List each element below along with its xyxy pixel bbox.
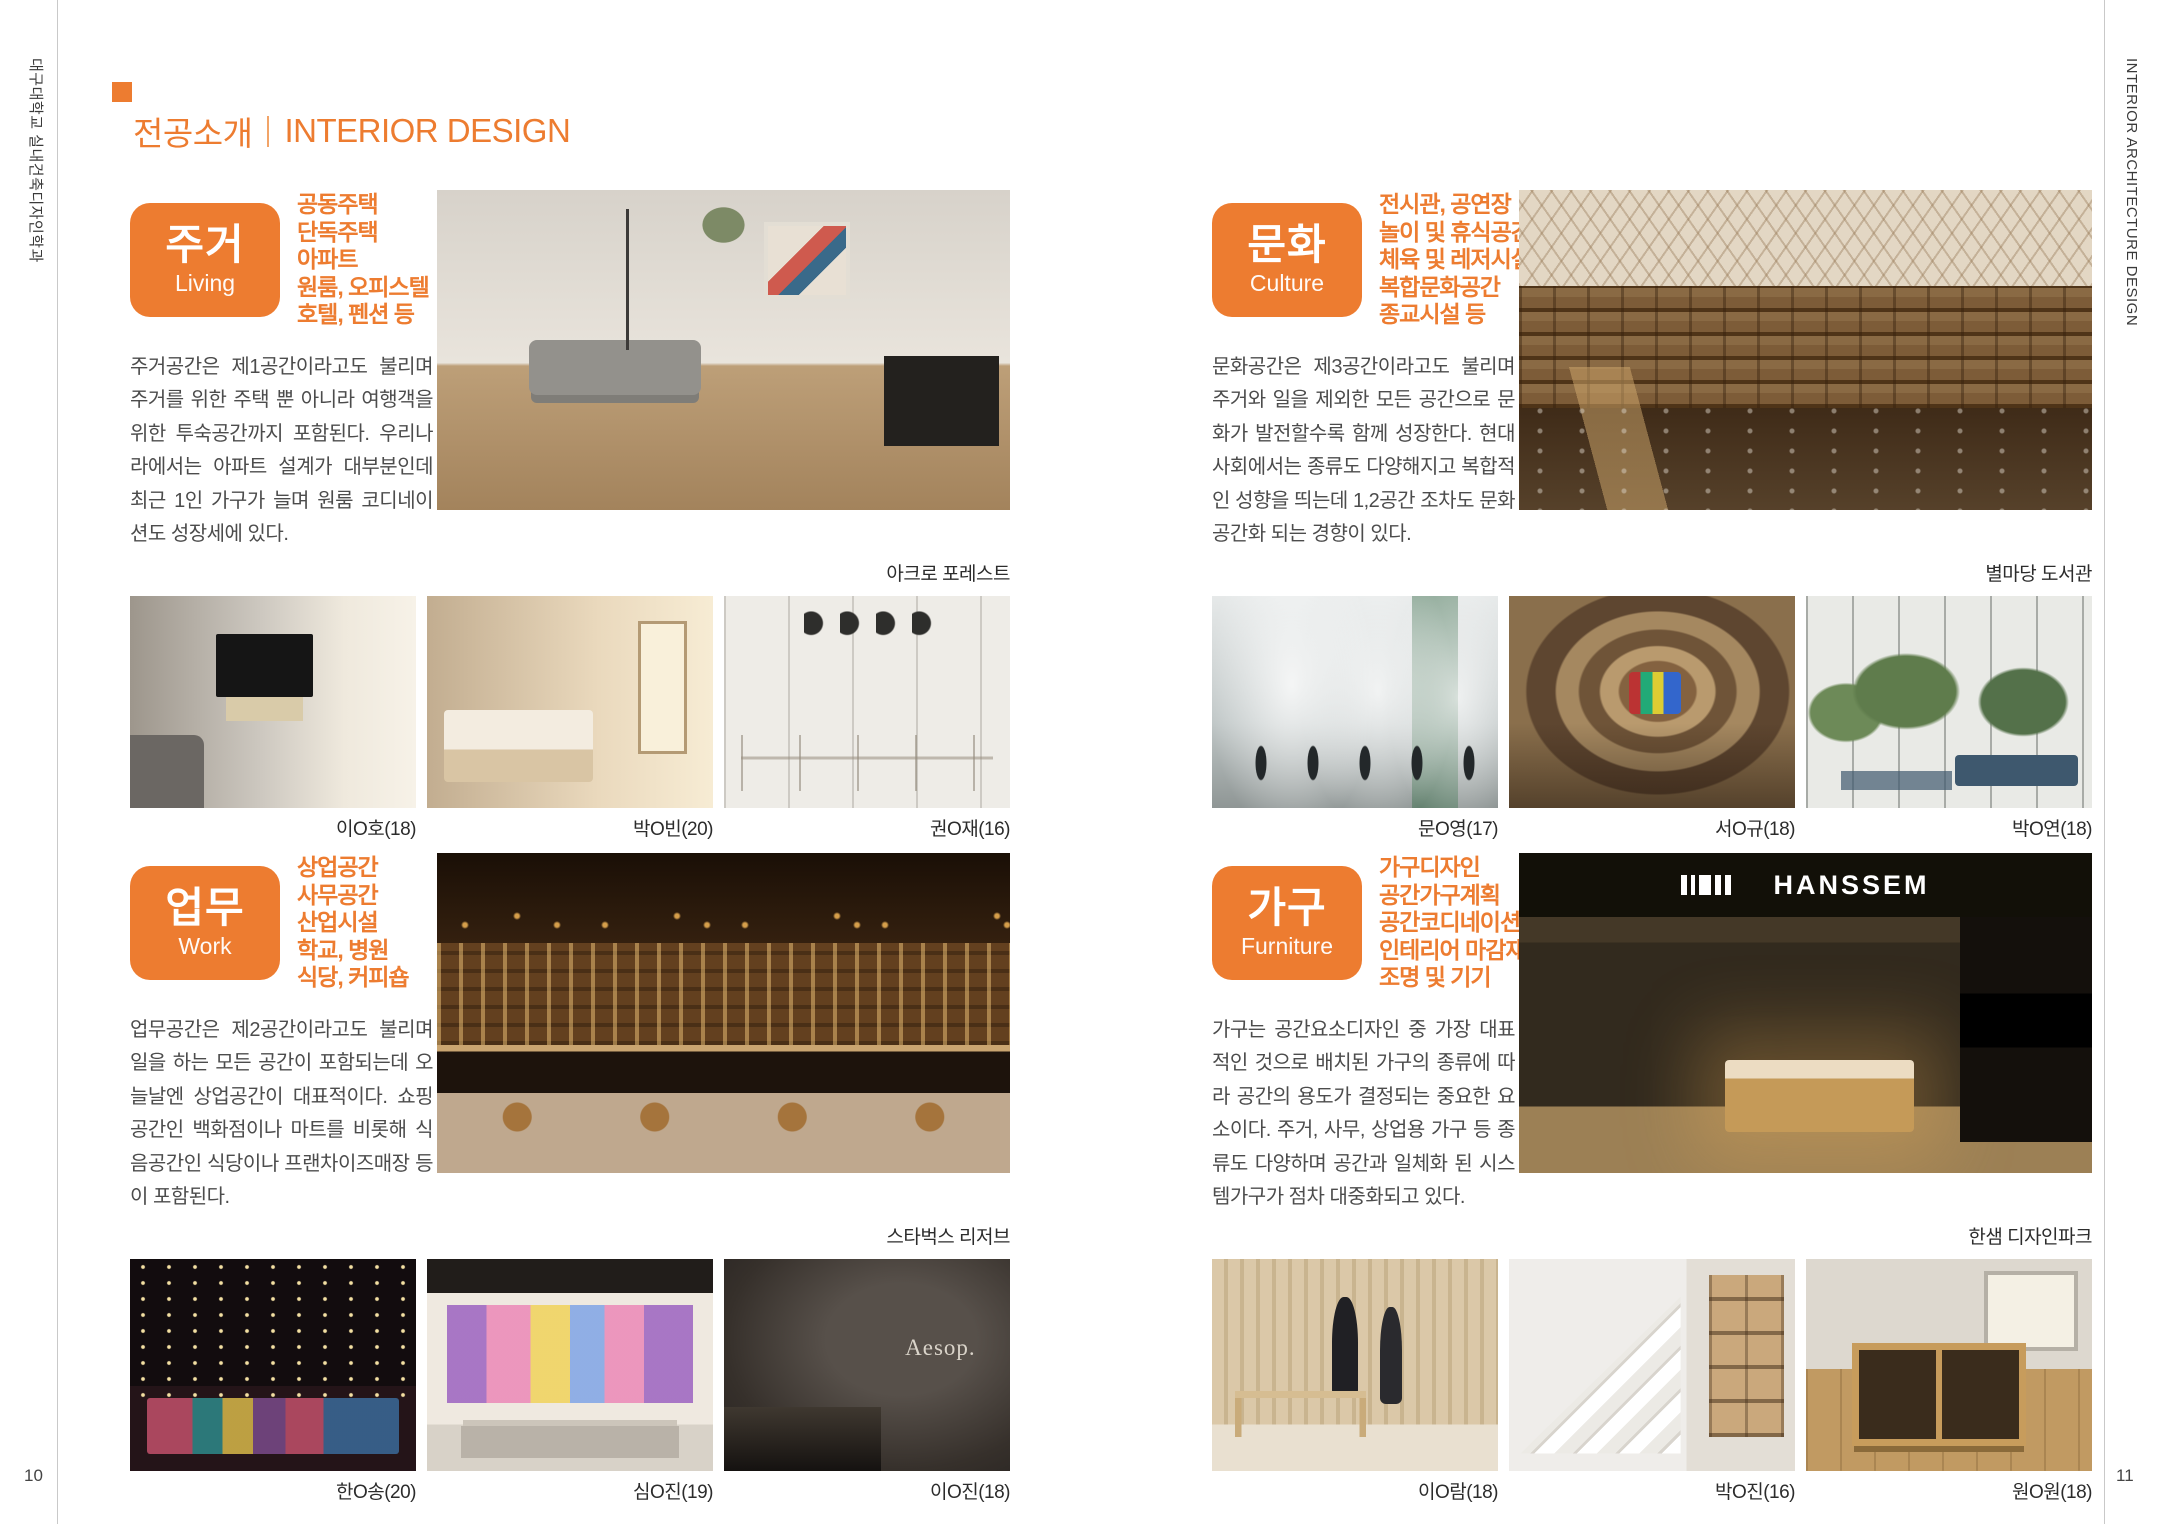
furniture-thumb-2: 박O진(16) <box>1509 1259 1795 1504</box>
brochure-spread: 대구대학교 실내건축디자인학과 INTERIOR ARCHITECTURE DE… <box>0 0 2162 1524</box>
culture-badge-subtitle: Culture <box>1250 270 1324 297</box>
living-keyword-2: 단독주택 <box>297 219 429 247</box>
culture-keyword-4: 복합문화공간 <box>1379 274 1531 302</box>
culture-thumb-photo-3 <box>1806 596 2092 808</box>
work-thumb-caption-1: 한O송(20) <box>130 1477 416 1504</box>
furniture-badge: 가구 Furniture <box>1212 866 1362 980</box>
culture-thumb-caption-2: 서O규(18) <box>1509 814 1795 841</box>
living-thumb-caption-2: 박O빈(20) <box>427 814 713 841</box>
furniture-badge-row: 가구 Furniture 가구디자인 공간가구계획 공간코디네이션 인테리어 마… <box>1212 853 1519 992</box>
living-badge-title: 주거 <box>165 223 244 267</box>
furniture-text-column: 가구 Furniture 가구디자인 공간가구계획 공간코디네이션 인테리어 마… <box>1212 853 1519 1215</box>
work-badge-subtitle: Work <box>178 933 231 960</box>
work-keywords: 상업공간 사무공간 산업시설 학교, 병원 식당, 커피숍 <box>297 853 409 992</box>
culture-thumb-photo-2 <box>1509 596 1795 808</box>
work-keyword-3: 산업시설 <box>297 909 409 937</box>
culture-text-column: 문화 Culture 전시관, 공연장 놀이 및 휴식공간 체육 및 레저시설 … <box>1212 190 1519 552</box>
work-thumb-photo-3: Aesop. <box>724 1259 1010 1471</box>
cafe-ceiling-shape <box>437 853 1010 943</box>
furniture-thumb-caption-1: 이O람(18) <box>1212 1477 1498 1504</box>
work-thumb-3: Aesop. 이O진(18) <box>724 1259 1010 1504</box>
living-thumb-1: 이O호(18) <box>130 596 416 841</box>
culture-keyword-2: 놀이 및 휴식공간 <box>1379 219 1531 247</box>
plant-shape <box>689 196 758 254</box>
culture-main-caption: 별마당 도서관 <box>1212 559 2092 585</box>
furniture-main-photo: HANSSEM <box>1519 853 2092 1173</box>
living-keyword-1: 공동주택 <box>297 191 429 219</box>
culture-keywords: 전시관, 공연장 놀이 및 휴식공간 체육 및 레저시설 복합문화공간 종교시설… <box>1379 190 1531 329</box>
title-divider <box>267 116 269 147</box>
living-main-caption: 아크로 포레스트 <box>130 559 1010 585</box>
page-number-left: 10 <box>24 1466 43 1486</box>
culture-badge-row: 문화 Culture 전시관, 공연장 놀이 및 휴식공간 체육 및 레저시설 … <box>1212 190 1519 329</box>
furniture-thumb-caption-2: 박O진(16) <box>1509 1477 1795 1504</box>
living-thumb-photo-2 <box>427 596 713 808</box>
living-text-column: 주거 Living 공동주택 단독주택 아파트 원룸, 오피스텔 호텔, 펜션 … <box>130 190 437 552</box>
living-thumb-caption-3: 권O재(16) <box>724 814 1010 841</box>
work-keyword-1: 상업공간 <box>297 854 409 882</box>
page-title-en: INTERIOR DESIGN <box>284 112 570 150</box>
showroom-bedroom-shape <box>1519 917 2092 1173</box>
left-spine-text: 대구대학교 실내건축디자인학과 <box>26 58 47 263</box>
floor-lamp-shape <box>626 209 629 350</box>
furniture-thumb-caption-3: 원O원(18) <box>1806 1477 2092 1504</box>
living-thumb-row: 이O호(18) 박O빈(20) 권O재(16) <box>130 596 1010 841</box>
work-keyword-2: 사무공간 <box>297 882 409 910</box>
section-culture: 문화 Culture 전시관, 공연장 놀이 및 휴식공간 체육 및 레저시설 … <box>1212 190 2092 841</box>
furniture-description: 가구는 공간요소디자인 중 가장 대표적인 것으로 배치된 가구의 종류에 따라… <box>1212 1014 1515 1215</box>
left-margin-rule <box>57 0 58 1524</box>
living-badge-subtitle: Living <box>175 270 235 297</box>
cafe-shelf-wall-shape <box>437 943 1010 1045</box>
work-badge-row: 업무 Work 상업공간 사무공간 산업시설 학교, 병원 식당, 커피숍 <box>130 853 437 992</box>
work-thumb-2: 심O진(19) <box>427 1259 713 1504</box>
work-badge-title: 업무 <box>165 886 244 930</box>
furniture-badge-subtitle: Furniture <box>1241 933 1333 960</box>
furniture-thumb-photo-1 <box>1212 1259 1498 1471</box>
work-thumb-photo-1 <box>130 1259 416 1471</box>
section-work: 업무 Work 상업공간 사무공간 산업시설 학교, 병원 식당, 커피숍 업무… <box>130 853 1010 1504</box>
furniture-thumb-photo-2 <box>1509 1259 1795 1471</box>
culture-description: 문화공간은 제3공간이라고도 불리며 주거와 일을 제외한 모든 공간으로 문화… <box>1212 351 1515 552</box>
right-margin-rule <box>2104 0 2105 1524</box>
work-thumb-caption-2: 심O진(19) <box>427 1477 713 1504</box>
living-thumb-caption-1: 이O호(18) <box>130 814 416 841</box>
furniture-thumb-photo-3 <box>1806 1259 2092 1471</box>
work-thumb-row: 한O송(20) 심O진(19) Aesop. 이O진(18) <box>130 1259 1010 1504</box>
left-page-column: 주거 Living 공동주택 단독주택 아파트 원룸, 오피스텔 호텔, 펜션 … <box>130 190 1010 1450</box>
work-text-column: 업무 Work 상업공간 사무공간 산업시설 학교, 병원 식당, 커피숍 업무… <box>130 853 437 1215</box>
furniture-keywords: 가구디자인 공간가구계획 공간코디네이션 인테리어 마감재 조명 및 기기 <box>1379 853 1526 992</box>
library-floor-shape <box>1519 408 2092 510</box>
culture-badge-title: 문화 <box>1247 223 1326 267</box>
furniture-main-caption: 한샘 디자인파크 <box>1212 1222 2092 1248</box>
aesop-logo-text: Aesop. <box>905 1335 976 1361</box>
living-keyword-3: 아파트 <box>297 246 429 274</box>
work-description: 업무공간은 제2공간이라고도 불리며 일을 하는 모든 공간이 포함되는데 오늘… <box>130 1014 433 1215</box>
work-thumb-1: 한O송(20) <box>130 1259 416 1504</box>
cafe-counter-shape <box>437 1045 1010 1093</box>
library-ceiling-shape <box>1519 190 2092 286</box>
culture-keyword-5: 종교시설 등 <box>1379 301 1531 329</box>
culture-top-row: 문화 Culture 전시관, 공연장 놀이 및 휴식공간 체육 및 레저시설 … <box>1212 190 2092 552</box>
work-main-caption: 스타벅스 리저브 <box>130 1222 1010 1248</box>
hanssem-sign: HANSSEM <box>1519 853 2092 917</box>
page-title: 전공소개 INTERIOR DESIGN <box>133 107 570 155</box>
hanssem-sign-text: HANSSEM <box>1773 870 1929 901</box>
work-keyword-4: 학교, 병원 <box>297 937 409 965</box>
culture-main-photo <box>1519 190 2092 510</box>
furniture-thumb-1: 이O람(18) <box>1212 1259 1498 1504</box>
right-spine-text: INTERIOR ARCHITECTURE DESIGN <box>2123 58 2140 326</box>
work-badge: 업무 Work <box>130 866 280 980</box>
culture-thumb-caption-3: 박O연(18) <box>1806 814 2092 841</box>
living-thumb-photo-3 <box>724 596 1010 808</box>
living-top-row: 주거 Living 공동주택 단독주택 아파트 원룸, 오피스텔 호텔, 펜션 … <box>130 190 1010 552</box>
living-keyword-5: 호텔, 펜션 등 <box>297 301 429 329</box>
living-keyword-4: 원룸, 오피스텔 <box>297 274 429 302</box>
living-keywords: 공동주택 단독주택 아파트 원룸, 오피스텔 호텔, 펜션 등 <box>297 190 429 329</box>
furniture-keyword-5: 조명 및 기기 <box>1379 964 1526 992</box>
culture-thumb-1: 문O영(17) <box>1212 596 1498 841</box>
hanssem-logo-icon <box>1681 875 1755 895</box>
wall-art-shape <box>764 222 850 299</box>
culture-thumb-photo-1 <box>1212 596 1498 808</box>
culture-thumb-3: 박O연(18) <box>1806 596 2092 841</box>
right-page-column: 문화 Culture 전시관, 공연장 놀이 및 휴식공간 체육 및 레저시설 … <box>1212 190 2092 1450</box>
living-badge-row: 주거 Living 공동주택 단독주택 아파트 원룸, 오피스텔 호텔, 펜션 … <box>130 190 437 329</box>
culture-keyword-1: 전시관, 공연장 <box>1379 191 1531 219</box>
furniture-keyword-4: 인테리어 마감재 <box>1379 937 1526 965</box>
cafe-stools-shape <box>437 1093 1010 1173</box>
culture-thumb-caption-1: 문O영(17) <box>1212 814 1498 841</box>
living-description: 주거공간은 제1공간이라고도 불리며 주거를 위한 주택 뿐 아니라 여행객을 … <box>130 351 433 552</box>
work-thumb-caption-3: 이O진(18) <box>724 1477 1010 1504</box>
work-keyword-5: 식당, 커피숍 <box>297 964 409 992</box>
furniture-keyword-3: 공간코디네이션 <box>1379 909 1526 937</box>
furniture-badge-title: 가구 <box>1247 886 1326 930</box>
culture-thumb-2: 서O규(18) <box>1509 596 1795 841</box>
living-thumb-2: 박O빈(20) <box>427 596 713 841</box>
work-thumb-photo-2 <box>427 1259 713 1471</box>
furniture-top-row: 가구 Furniture 가구디자인 공간가구계획 공간코디네이션 인테리어 마… <box>1212 853 2092 1215</box>
page-header: 전공소개 INTERIOR DESIGN <box>112 82 570 155</box>
living-badge: 주거 Living <box>130 203 280 317</box>
living-thumb-3: 권O재(16) <box>724 596 1010 841</box>
furniture-thumb-row: 이O람(18) 박O진(16) 원O원(18) <box>1212 1259 2092 1504</box>
section-living: 주거 Living 공동주택 단독주택 아파트 원룸, 오피스텔 호텔, 펜션 … <box>130 190 1010 841</box>
work-main-photo <box>437 853 1010 1173</box>
section-furniture: 가구 Furniture 가구디자인 공간가구계획 공간코디네이션 인테리어 마… <box>1212 853 2092 1504</box>
living-main-photo <box>437 190 1010 510</box>
culture-badge: 문화 Culture <box>1212 203 1362 317</box>
work-top-row: 업무 Work 상업공간 사무공간 산업시설 학교, 병원 식당, 커피숍 업무… <box>130 853 1010 1215</box>
furniture-keyword-2: 공간가구계획 <box>1379 882 1526 910</box>
header-square-icon <box>112 82 132 102</box>
page-title-ko: 전공소개 <box>133 107 252 155</box>
living-thumb-photo-1 <box>130 596 416 808</box>
culture-thumb-row: 문O영(17) 서O규(18) 박O연(18) <box>1212 596 2092 841</box>
page-number-right: 11 <box>2116 1466 2134 1486</box>
culture-keyword-3: 체육 및 레저시설 <box>1379 246 1531 274</box>
furniture-thumb-3: 원O원(18) <box>1806 1259 2092 1504</box>
furniture-keyword-1: 가구디자인 <box>1379 854 1526 882</box>
